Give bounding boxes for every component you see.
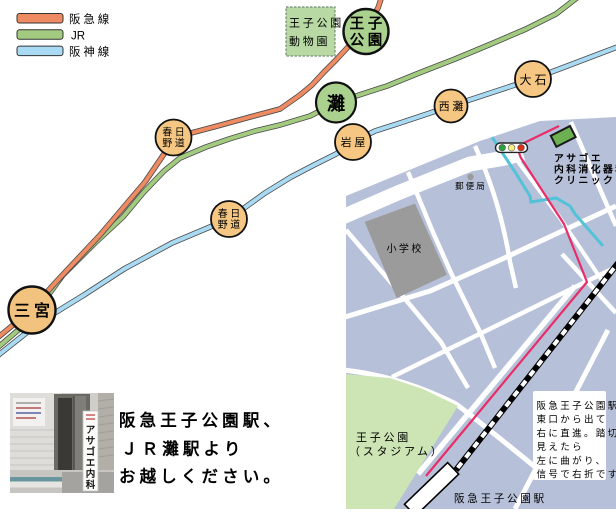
svg-text:内科消化器科: 内科消化器科 xyxy=(554,163,616,176)
svg-text:（スタジアム）: （スタジアム） xyxy=(349,445,444,458)
svg-text:王子公園: 王子公園 xyxy=(289,17,344,30)
svg-text:春日: 春日 xyxy=(162,127,187,139)
svg-text:三宮: 三宮 xyxy=(14,301,54,320)
svg-text:見えたら: 見えたら xyxy=(537,442,585,453)
svg-text:春日: 春日 xyxy=(218,208,243,220)
svg-text:阪急王子公園駅: 阪急王子公園駅 xyxy=(537,400,616,412)
svg-text:野道: 野道 xyxy=(218,218,243,231)
svg-text:阪神線: 阪神線 xyxy=(69,45,112,59)
svg-text:お越しください。: お越しください。 xyxy=(119,466,284,486)
svg-text:郵便局: 郵便局 xyxy=(455,181,487,191)
svg-text:阪急王子公園駅、: 阪急王子公園駅、 xyxy=(119,410,284,430)
svg-text:阪急線: 阪急線 xyxy=(69,12,112,26)
svg-text:西灘: 西灘 xyxy=(439,100,467,113)
svg-text:阪急王子公園駅: 阪急王子公園駅 xyxy=(454,492,547,505)
svg-text:野道: 野道 xyxy=(162,137,187,150)
svg-text:岩屋: 岩屋 xyxy=(341,135,369,149)
svg-text:サ: サ xyxy=(86,436,96,447)
svg-text:小学校: 小学校 xyxy=(386,242,424,255)
svg-text:ゴ: ゴ xyxy=(86,446,96,458)
svg-text:右に直進。踏切が: 右に直進。踏切が xyxy=(537,427,616,439)
svg-text:ＪＲ灘駅より: ＪＲ灘駅より xyxy=(121,439,244,459)
svg-text:公園: 公園 xyxy=(350,32,386,49)
svg-text:ア: ア xyxy=(86,425,96,436)
svg-text:信号で右折です。: 信号で右折です。 xyxy=(537,469,616,481)
svg-text:東口から出て: 東口から出て xyxy=(537,414,608,426)
svg-text:王子公園: 王子公園 xyxy=(356,431,411,444)
svg-text:クリニック: クリニック xyxy=(554,175,615,187)
svg-text:JR: JR xyxy=(71,30,85,42)
svg-text:左に曲がり、: 左に曲がり、 xyxy=(537,455,608,467)
svg-text:灘: 灘 xyxy=(327,93,345,114)
svg-text:エ: エ xyxy=(86,458,96,469)
svg-text:動物園: 動物園 xyxy=(289,34,330,48)
svg-text:大石: 大石 xyxy=(519,73,549,87)
svg-text:アサゴエ: アサゴエ xyxy=(554,152,603,165)
svg-text:王子: 王子 xyxy=(350,16,386,33)
svg-text:内: 内 xyxy=(86,468,96,480)
svg-text:科: 科 xyxy=(86,479,96,491)
